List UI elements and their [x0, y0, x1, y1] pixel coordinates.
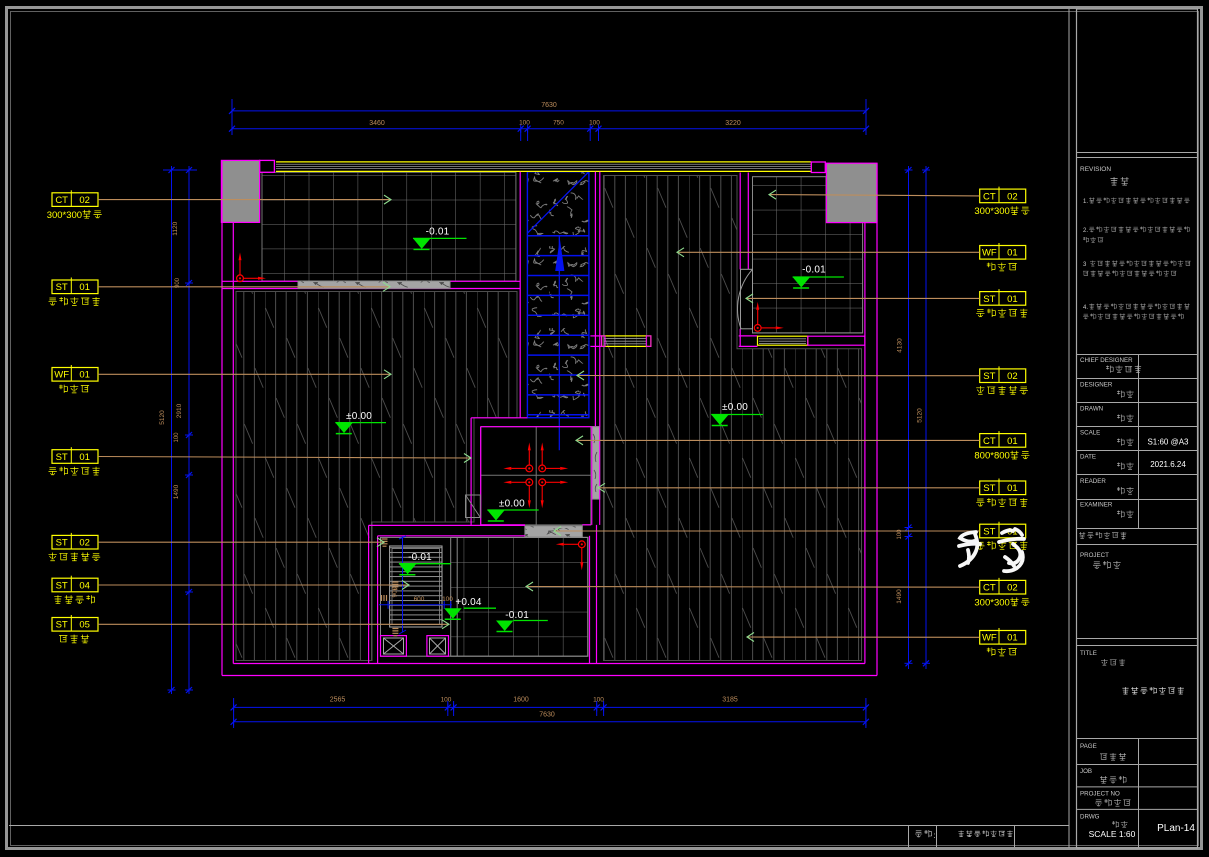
svg-text:01: 01 — [1007, 633, 1018, 644]
svg-text:CHIEF DESIGNER: CHIEF DESIGNER — [1080, 357, 1133, 364]
svg-text:ST: ST — [56, 580, 68, 591]
svg-text:PROJECT NO: PROJECT NO — [1080, 791, 1120, 798]
svg-text:ST: ST — [983, 483, 995, 494]
svg-text:±0.00: ±0.00 — [346, 411, 372, 422]
svg-text:PLan-14: PLan-14 — [1157, 823, 1195, 834]
svg-text:ST: ST — [56, 620, 68, 631]
svg-text:-0.01: -0.01 — [505, 610, 529, 621]
svg-text:100: 100 — [897, 529, 903, 540]
svg-text:300*300: 300*300 — [47, 210, 82, 221]
svg-text:100: 100 — [519, 120, 530, 127]
svg-text:+0.04: +0.04 — [455, 597, 482, 608]
svg-text:DESIGNER: DESIGNER — [1080, 382, 1113, 389]
svg-text:-0.01: -0.01 — [408, 552, 432, 563]
svg-text:7630: 7630 — [541, 102, 557, 109]
svg-text:READER: READER — [1080, 478, 1106, 485]
svg-text:100: 100 — [589, 120, 600, 127]
svg-text:CT: CT — [983, 191, 996, 202]
svg-text:DRAWN: DRAWN — [1080, 406, 1103, 413]
svg-text:3220: 3220 — [725, 120, 741, 127]
svg-text:100: 100 — [174, 432, 180, 443]
svg-text:2.: 2. — [1083, 228, 1088, 234]
svg-text:4.: 4. — [1083, 305, 1088, 311]
svg-text:ST: ST — [56, 282, 68, 293]
svg-text:05: 05 — [79, 620, 90, 631]
svg-text:DRWG: DRWG — [1080, 814, 1100, 821]
svg-text:S1:60 @A3: S1:60 @A3 — [1147, 438, 1189, 447]
svg-text:900: 900 — [392, 586, 399, 597]
svg-text:WF: WF — [54, 370, 69, 381]
svg-text:01: 01 — [79, 282, 90, 293]
svg-text:1120: 1120 — [172, 221, 179, 235]
svg-text:PAGE: PAGE — [1080, 743, 1097, 750]
svg-text:1.: 1. — [1083, 199, 1088, 205]
svg-text:4130: 4130 — [897, 338, 904, 353]
svg-text:WF: WF — [982, 248, 997, 259]
svg-text:300*300: 300*300 — [974, 598, 1009, 609]
svg-text:01: 01 — [1007, 248, 1018, 259]
svg-text:±0.00: ±0.00 — [499, 499, 525, 510]
svg-text:-0.01: -0.01 — [426, 227, 450, 238]
svg-text:2910: 2910 — [176, 403, 183, 418]
svg-text:ST: ST — [56, 452, 68, 463]
svg-text:100: 100 — [593, 697, 604, 704]
svg-text:ST: ST — [983, 526, 995, 537]
svg-text:01: 01 — [79, 370, 90, 381]
svg-text:±0.00: ±0.00 — [722, 402, 748, 413]
svg-text:SCALE: SCALE — [1080, 430, 1100, 437]
svg-text::: : — [934, 831, 936, 840]
svg-text:3185: 3185 — [722, 697, 738, 704]
svg-text:1600: 1600 — [513, 697, 529, 704]
svg-text:100: 100 — [442, 596, 453, 603]
svg-text:01: 01 — [1007, 436, 1018, 447]
svg-text:04: 04 — [79, 580, 90, 591]
svg-text:-0.01: -0.01 — [802, 265, 826, 276]
svg-text:750: 750 — [553, 120, 564, 127]
svg-text:02: 02 — [79, 538, 90, 549]
svg-text:01: 01 — [1007, 483, 1018, 494]
svg-text:WF: WF — [982, 633, 997, 644]
svg-text:EXAMINER: EXAMINER — [1080, 502, 1113, 509]
svg-text:01: 01 — [1007, 294, 1018, 305]
svg-text:02: 02 — [1007, 191, 1018, 202]
svg-text:7630: 7630 — [539, 712, 555, 719]
svg-text:,: , — [1122, 534, 1124, 541]
svg-text:300*300: 300*300 — [974, 206, 1009, 217]
svg-text:ST: ST — [983, 294, 995, 305]
svg-text:2565: 2565 — [330, 697, 346, 704]
svg-text:SCALE 1:60: SCALE 1:60 — [1089, 829, 1136, 839]
svg-text:5120: 5120 — [159, 410, 166, 425]
svg-text:02: 02 — [1007, 371, 1018, 382]
svg-text:CT: CT — [55, 195, 68, 206]
svg-text:100: 100 — [441, 697, 452, 704]
svg-text:02: 02 — [79, 195, 90, 206]
svg-text:1490: 1490 — [173, 484, 180, 499]
svg-text:ST: ST — [983, 371, 995, 382]
svg-text:02: 02 — [1007, 583, 1018, 594]
svg-text:TITLE: TITLE — [1080, 650, 1097, 657]
svg-text:CT: CT — [983, 436, 996, 447]
svg-text:REVISION: REVISION — [1080, 166, 1111, 173]
svg-text:01: 01 — [79, 452, 90, 463]
svg-text:2021.6.24: 2021.6.24 — [1150, 460, 1186, 469]
svg-text:PROJECT: PROJECT — [1080, 552, 1109, 559]
svg-text:DATE: DATE — [1080, 454, 1096, 461]
svg-text:3460: 3460 — [369, 120, 385, 127]
svg-text:CT: CT — [983, 583, 996, 594]
svg-text:600: 600 — [414, 596, 425, 603]
svg-text:ST: ST — [56, 538, 68, 549]
svg-text:5120: 5120 — [916, 408, 923, 423]
svg-text:1490: 1490 — [896, 589, 903, 604]
svg-text:800*800: 800*800 — [974, 451, 1009, 462]
svg-text:JOB: JOB — [1080, 768, 1092, 775]
